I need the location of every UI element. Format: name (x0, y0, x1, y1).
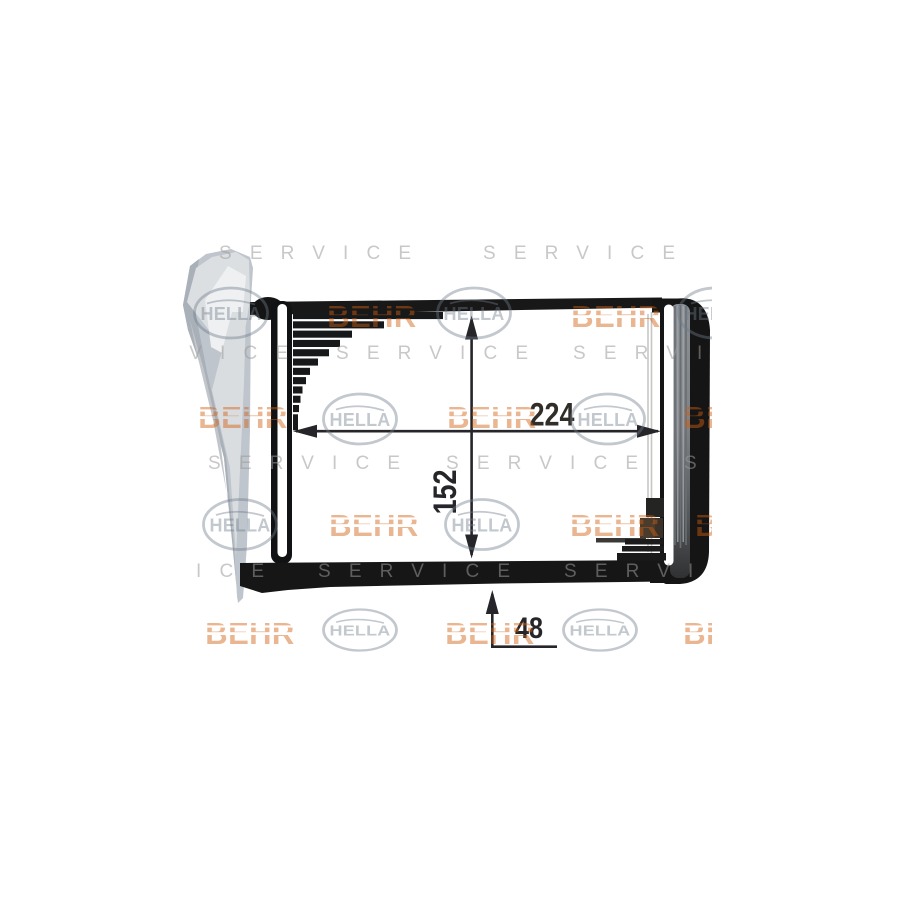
svg-text:152: 152 (428, 470, 464, 515)
svg-text:48: 48 (515, 611, 543, 645)
